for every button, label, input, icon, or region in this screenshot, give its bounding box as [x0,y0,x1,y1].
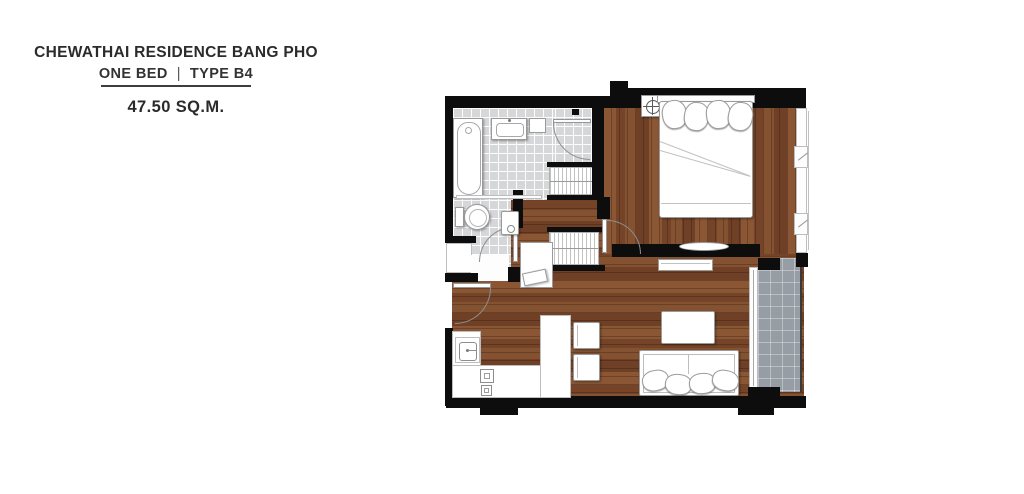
balcony-sliding-door [749,267,758,389]
shower-panel [501,211,519,235]
sofa [639,350,739,396]
wall-bath-bedroom [592,96,604,197]
window-outer-frame [808,111,809,250]
unit-type-code: TYPE B4 [190,66,253,82]
wall-bottom-column-left [480,408,518,415]
bathtub [453,118,483,198]
unit-type-label: ONE BED [99,66,168,82]
wall-fixture-dot [572,109,579,115]
double-bed [657,95,755,219]
subtitle-separator: | [168,66,190,82]
subtitle-underline [101,85,251,87]
wall-right-lower [796,253,808,267]
toilet [455,204,492,231]
wall-balcony-bottom [748,387,780,399]
floor-plan [443,75,815,420]
bedroom-tv-shelf [679,242,729,251]
unit-area-label: 47.50 SQ.M. [26,98,326,117]
bath-cabinet [529,118,546,133]
tv-console [658,259,713,271]
coffee-table [661,311,715,344]
plan-header: CHEWATHAI RESIDENCE BANG PHO ONE BED|TYP… [26,44,326,117]
wall-niche-top [445,236,476,243]
wardrobe-hall [549,167,597,195]
floorplan-page: CHEWATHAI RESIDENCE BANG PHO ONE BED|TYP… [0,0,1024,494]
wall-bedroom-door-jamb [597,197,610,219]
window-icon [794,213,808,235]
balcony-floor [758,258,802,392]
wall-wardrobe1-bottom [547,195,604,200]
window-icon [794,146,808,168]
wall-niche-bottom [445,273,478,282]
wall-wardrobe1-top [547,162,604,167]
unit-subtitle: ONE BED|TYPE B4 [26,66,326,82]
balcony-railing [800,258,802,392]
kitchen-sink [455,337,480,363]
wardrobe-entry [549,232,599,265]
bar-chair [573,354,600,381]
wall-wardrobe2-bottom [547,265,605,271]
glass-partition [456,195,542,199]
wall-balcony-top [758,258,780,270]
wall-left-upper [445,96,453,236]
stove [480,369,496,395]
wall-top-notch [610,81,628,108]
wash-basin [491,118,527,140]
bar-chair [573,322,600,349]
wall-bottom-column-right [738,408,774,415]
kitchen-peninsula [540,315,571,398]
project-title: CHEWATHAI RESIDENCE BANG PHO [26,44,326,62]
service-niche [446,243,472,273]
wall-wardrobe2-top [547,227,605,232]
wall-top-left [446,96,610,108]
